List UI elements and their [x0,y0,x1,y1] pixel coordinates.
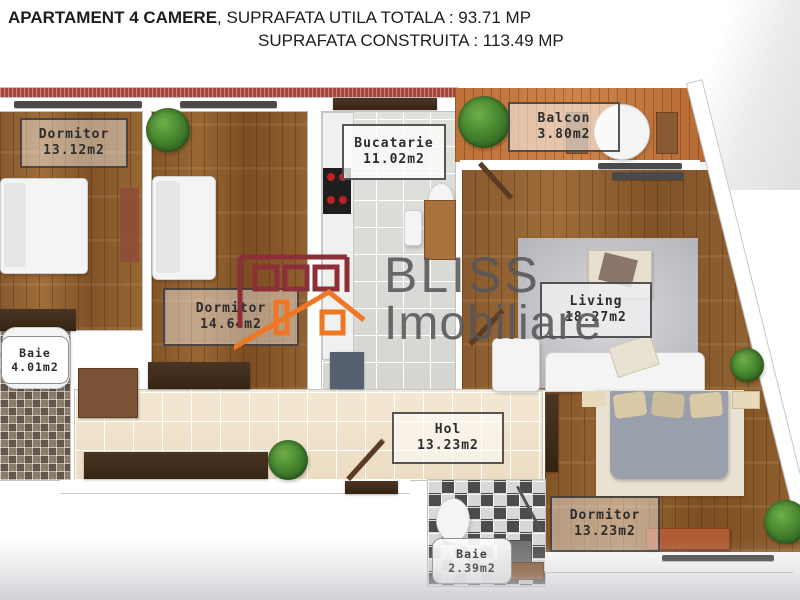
title-suprafata-construita: SUPRAFATA CONSTRUITA : 113.49 MP [8,29,792,52]
plant-dormitor2 [146,108,190,152]
room-label-dormitor1: Dormitor13.12m2 [20,118,128,168]
kitchen-table [424,200,456,260]
window-dormitor1 [14,101,142,108]
kitchen-chair [404,210,422,246]
pillow-dormitor1 [4,183,26,267]
title-line1: APARTAMENT 4 CAMERE, SUPRAFATA UTILA TOT… [8,8,531,27]
nightstand-left [582,391,606,407]
plant-balcon [458,96,510,148]
plant-dormitor3 [764,500,800,544]
tv-console [612,172,684,180]
floorplan-page: APARTAMENT 4 CAMERE, SUPRAFATA UTILA TOT… [0,0,800,600]
bottom-shading [0,540,800,600]
stove-burner [327,173,335,181]
kitchen-cabinet [330,352,364,389]
room-label-hol: Hol13.23m2 [392,412,504,464]
hol-cabinet [78,368,138,418]
wardrobe-dormitor2 [148,362,250,389]
nightstand-right [732,391,760,409]
toilet [436,498,470,542]
kitchen-top-cabinet [333,98,437,110]
plant-living [730,348,764,382]
hol-wardrobe [84,452,268,479]
stove-burner [339,196,347,204]
exterior-wall-top [0,88,457,97]
entrance-threshold [345,481,398,494]
room-label-baie1: Baie4.01m2 [1,336,69,384]
pillow-dormitor2 [156,181,180,273]
armchair [492,338,540,392]
balcony-door [598,163,682,169]
title-suprafata-utila: , SUPRAFATA UTILA TOTALA : 93.71 MP [217,8,531,27]
window-dormitor2 [180,101,277,108]
balcony-chair-right [656,112,678,154]
room-label-bucatarie: Bucatarie11.02m2 [342,124,446,180]
stove-burner [327,196,335,204]
room-label-living: Living18.27m2 [540,282,652,338]
pillow-dormitor3 [612,391,647,419]
pillow-dormitor3 [689,392,723,419]
plant-hol [268,440,308,480]
pillow-dormitor3 [651,391,685,418]
bliss-logo-icon [234,248,378,356]
room-label-balcon: Balcon3.80m2 [508,102,620,152]
wardrobe-dormitor3 [546,394,558,472]
page-title: APARTAMENT 4 CAMERE, SUPRAFATA UTILA TOT… [8,6,792,52]
rug-dormitor1 [120,188,139,262]
title-apartment: APARTAMENT 4 CAMERE [8,8,217,27]
